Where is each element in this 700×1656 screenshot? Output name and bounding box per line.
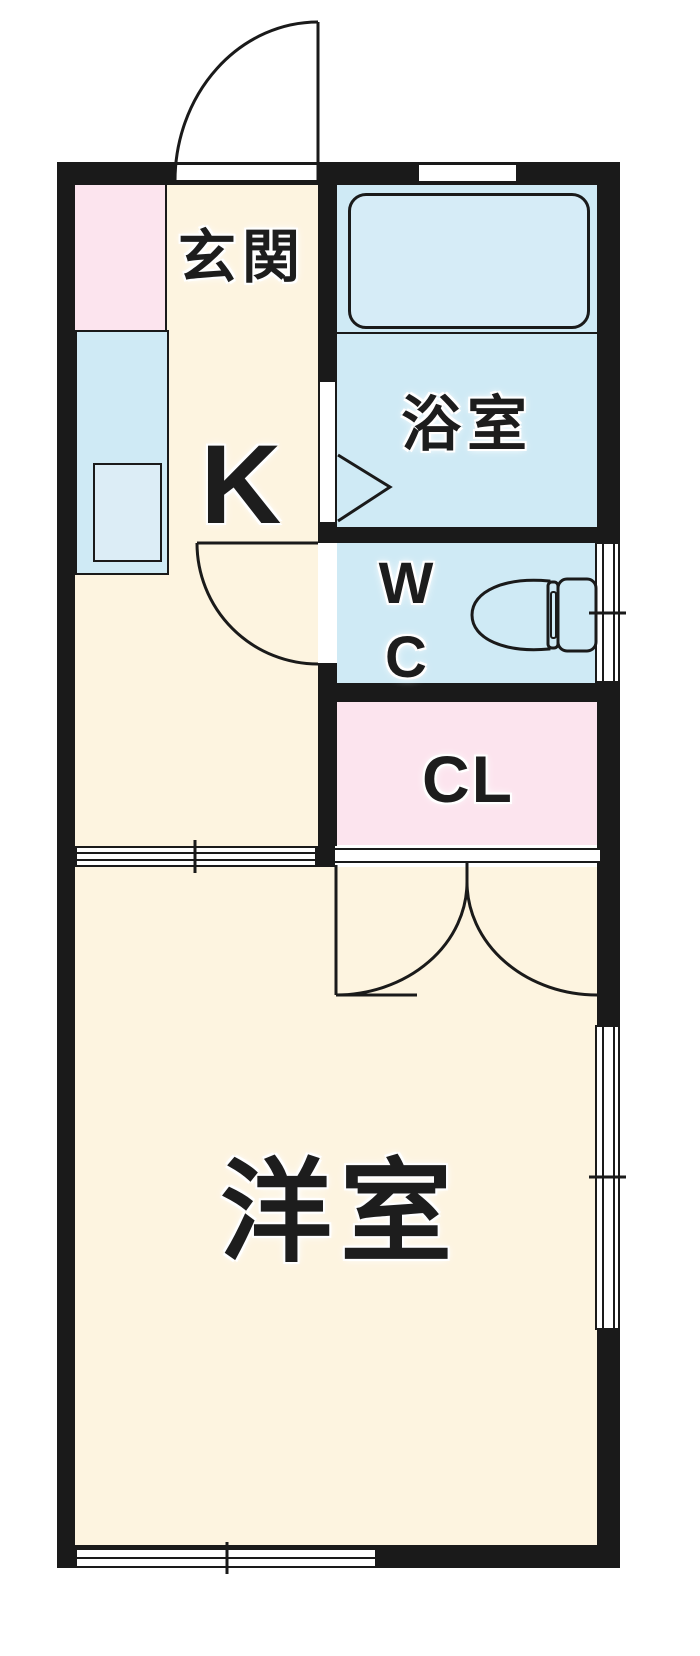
bottom-window-glazing	[77, 1542, 375, 1574]
floor-plan: 玄関 K 浴室 W C CL 洋室	[0, 0, 700, 1656]
label-wc: W C	[346, 547, 466, 695]
label-closet: CL	[388, 742, 548, 818]
label-bathroom: 浴室	[357, 390, 577, 459]
label-wc-line1: W	[346, 547, 466, 621]
wc-window-glazing	[589, 544, 626, 681]
entrance-door-swing	[175, 22, 318, 181]
label-wc-line2: C	[346, 621, 466, 695]
sliding-partition-rails	[77, 840, 315, 873]
label-kitchen: K	[181, 429, 301, 541]
bathroom-door-marker	[338, 455, 390, 521]
closet-double-door-swing	[336, 863, 597, 995]
western-window-glazing	[589, 1027, 626, 1328]
label-western-room: 洋室	[170, 1149, 510, 1278]
wc-door-swing	[197, 543, 318, 664]
toilet	[472, 579, 596, 651]
label-genkan: 玄関	[132, 225, 352, 292]
